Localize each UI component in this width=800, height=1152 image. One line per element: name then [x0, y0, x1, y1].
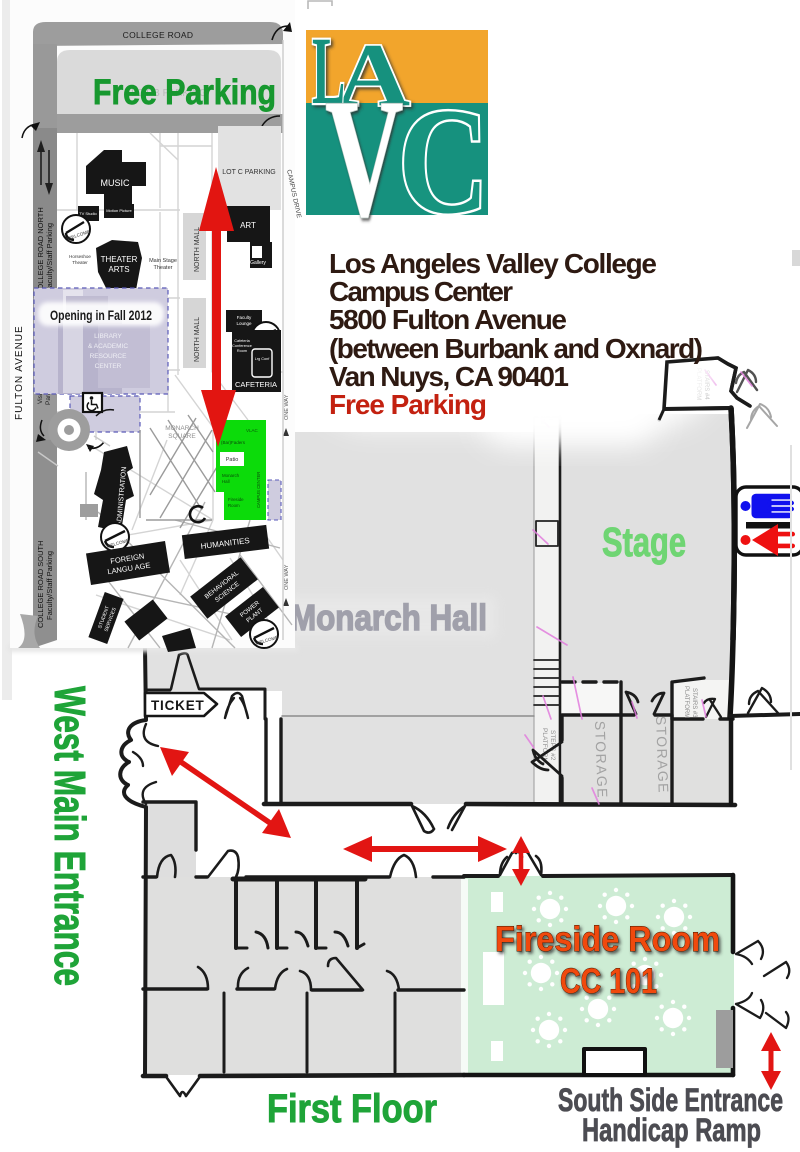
svg-text:Free Parking: Free Parking	[93, 73, 276, 112]
svg-text:Patio: Patio	[226, 457, 239, 463]
svg-text:Motion Picture: Motion Picture	[106, 208, 132, 213]
svg-text:RESOURCE: RESOURCE	[90, 353, 128, 360]
svg-text:Lounge: Lounge	[236, 321, 252, 326]
svg-text:Opening in Fall 2012: Opening in Fall 2012	[50, 307, 152, 323]
svg-text:Monarch: Monarch	[222, 473, 240, 478]
svg-text:Van Nuys, CA 90401: Van Nuys, CA 90401	[329, 361, 569, 392]
svg-text:COLLEGE ROAD: COLLEGE ROAD	[123, 30, 194, 40]
svg-text:Free Parking: Free Parking	[329, 389, 487, 420]
svg-text:Hall: Hall	[222, 479, 230, 484]
svg-text:(Bar)Faders: (Bar)Faders	[221, 440, 246, 445]
svg-text:(between Burbank and Oxnard): (between Burbank and Oxnard)	[329, 333, 703, 364]
svg-text:COLLEGE ROAD NORTH: COLLEGE ROAD NORTH	[36, 207, 45, 295]
svg-text:Los Angeles Valley College: Los Angeles Valley College	[329, 248, 657, 279]
svg-text:CC 101: CC 101	[560, 962, 657, 1001]
svg-text:THEATER: THEATER	[101, 255, 138, 264]
svg-text:Horseshoe: Horseshoe	[69, 254, 91, 259]
svg-text:TICKET: TICKET	[151, 698, 205, 713]
svg-text:Faculty/Staff Parking: Faculty/Staff Parking	[45, 223, 54, 292]
svg-text:Handicap Ramp: Handicap Ramp	[582, 1112, 761, 1148]
svg-text:STORAGE: STORAGE	[653, 716, 672, 795]
svg-text:Gallery: Gallery	[250, 260, 266, 266]
svg-text:STORAGE: STORAGE	[592, 721, 611, 800]
svg-text:FULTON AVENUE: FULTON AVENUE	[14, 325, 25, 420]
svg-text:5800 Fulton Avenue: 5800 Fulton Avenue	[329, 304, 567, 335]
svg-text:Stage: Stage	[602, 519, 686, 565]
svg-text:NORTH MALL: NORTH MALL	[194, 227, 201, 272]
svg-text:Room: Room	[237, 349, 247, 353]
svg-text:ARTS: ARTS	[108, 265, 129, 274]
svg-text:MUSIC: MUSIC	[101, 178, 131, 188]
svg-text:West Main Entrance: West Main Entrance	[45, 686, 94, 986]
svg-text:SQUARE: SQUARE	[168, 433, 196, 440]
svg-text:Cafeteria: Cafeteria	[234, 339, 250, 343]
svg-text:Room: Room	[228, 503, 240, 508]
svg-text:CENTER: CENTER	[95, 363, 122, 370]
svg-text:Theater: Theater	[72, 260, 88, 265]
svg-text:PLATFORM: PLATFORM	[683, 686, 689, 718]
svg-text:Fireside: Fireside	[228, 497, 244, 502]
svg-text:Monarch Hall: Monarch Hall	[290, 597, 487, 638]
svg-text:C: C	[398, 78, 489, 246]
svg-text:ONE WAY: ONE WAY	[284, 564, 290, 590]
svg-text:Lrg Conf: Lrg Conf	[255, 357, 271, 361]
svg-text:Main Stage: Main Stage	[149, 258, 177, 264]
svg-text:Faculty/Staff Parking: Faculty/Staff Parking	[45, 551, 54, 620]
svg-text:STAIRS #3: STAIRS #3	[691, 688, 697, 718]
svg-text:CAMPUS CENTER: CAMPUS CENTER	[256, 472, 261, 508]
svg-text:LOT C PARKING: LOT C PARKING	[222, 169, 275, 176]
svg-text:LIBRARY: LIBRARY	[94, 333, 122, 340]
svg-text:NORTH MALL: NORTH MALL	[194, 317, 201, 362]
svg-text:Faculty: Faculty	[237, 315, 252, 320]
svg-text:COLLEGE ROAD SOUTH: COLLEGE ROAD SOUTH	[36, 540, 45, 628]
svg-text:ONE WAY: ONE WAY	[284, 394, 290, 420]
svg-text:& ACADEMIC: & ACADEMIC	[88, 343, 128, 350]
svg-text:VLAC: VLAC	[246, 428, 259, 433]
svg-text:Conference: Conference	[232, 344, 252, 348]
svg-text:MONARCH: MONARCH	[165, 425, 199, 432]
svg-text:CAFETERIA: CAFETERIA	[235, 380, 277, 389]
svg-text:Theater: Theater	[154, 265, 173, 271]
svg-text:Campus Center: Campus Center	[329, 276, 513, 307]
svg-text:First Floor: First Floor	[267, 1087, 437, 1131]
svg-text:V: V	[325, 64, 404, 252]
svg-text:Fireside Room: Fireside Room	[495, 920, 720, 959]
svg-text:ART: ART	[240, 221, 256, 230]
